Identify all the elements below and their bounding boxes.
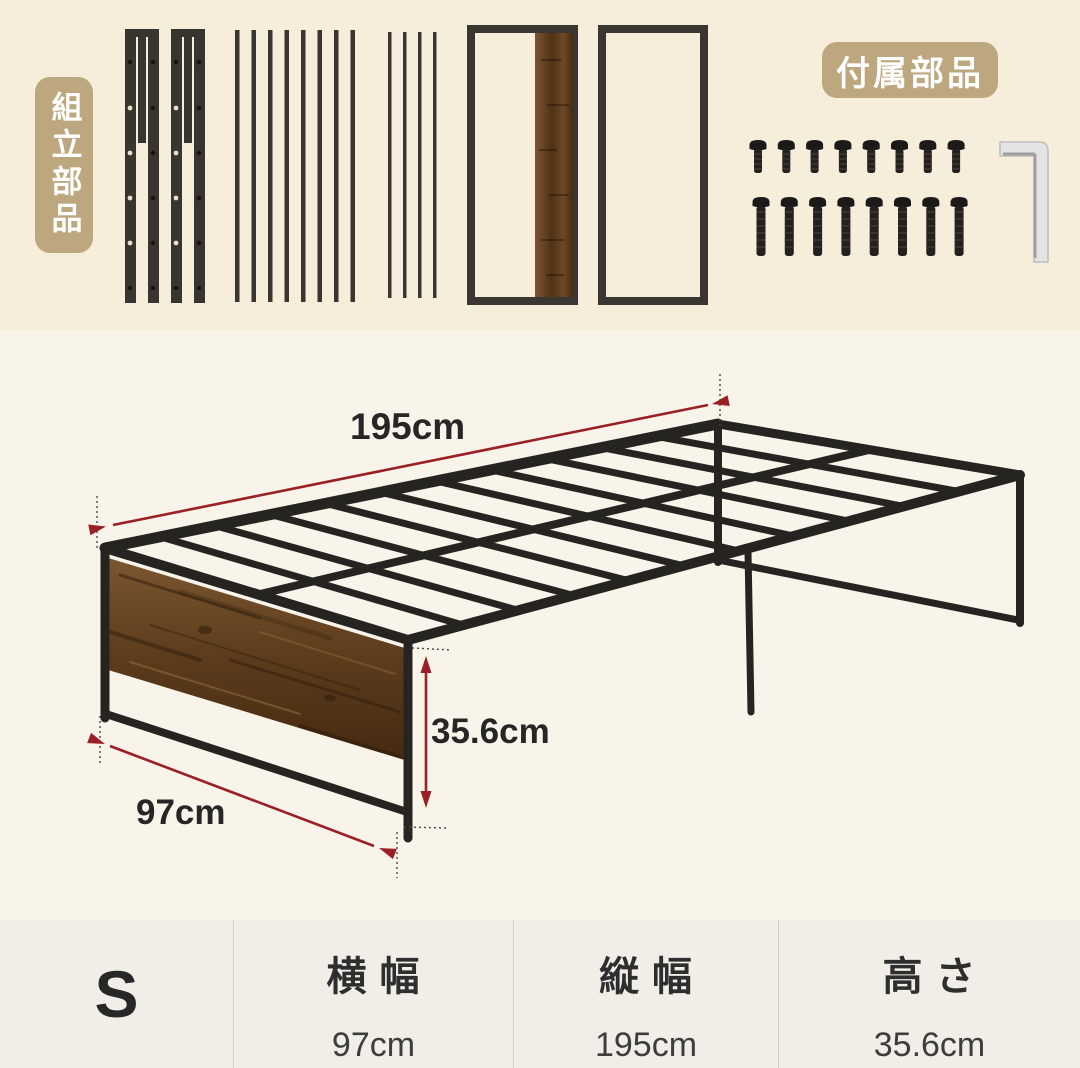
long-screws	[753, 197, 968, 256]
short-screws	[750, 140, 965, 173]
spec-table: S 横 幅 97cm 縦 幅 195cm 高 さ 35.6cm	[0, 920, 1080, 1068]
footboard-frame-part	[602, 29, 704, 301]
product-spec-image: 組立部品 付属部品	[0, 0, 1080, 1068]
spec-width-cell: 横 幅 97cm	[233, 920, 513, 1068]
included-parts-badge: 付属部品	[822, 42, 998, 98]
side-rail-part	[125, 29, 159, 303]
height-column-value: 35.6cm	[874, 1026, 986, 1065]
length-dimension-label: 195cm	[350, 406, 465, 448]
side-rail-part	[171, 29, 205, 303]
length-column-label: 縦 幅	[599, 944, 693, 1002]
included-parts-label: 付属部品	[836, 46, 984, 95]
dimension-arrow-height	[421, 656, 432, 808]
hardware-illustration	[738, 128, 983, 278]
spec-size-cell: S	[0, 920, 233, 1068]
width-dimension-label: 97cm	[136, 793, 226, 833]
headboard-panel-part	[471, 29, 574, 301]
spec-length-cell: 縦 幅 195cm	[513, 920, 778, 1068]
assembly-parts-badge: 組立部品	[35, 77, 93, 253]
length-column-value: 195cm	[595, 1026, 697, 1065]
hex-wrench-icon	[990, 130, 1060, 275]
center-support-leg	[748, 552, 751, 712]
assembly-parts-label: 組立部品	[42, 91, 87, 239]
size-value: S	[94, 956, 138, 1032]
spec-height-cell: 高 さ 35.6cm	[778, 920, 1080, 1068]
width-column-label: 横 幅	[326, 944, 420, 1002]
assembly-parts-illustration	[100, 20, 720, 320]
wide-slat-parts	[235, 30, 355, 302]
width-column-value: 97cm	[332, 1026, 415, 1065]
narrow-slat-parts	[388, 32, 437, 298]
height-dimension-label: 35.6cm	[431, 712, 550, 752]
height-column-label: 高 さ	[882, 944, 976, 1002]
